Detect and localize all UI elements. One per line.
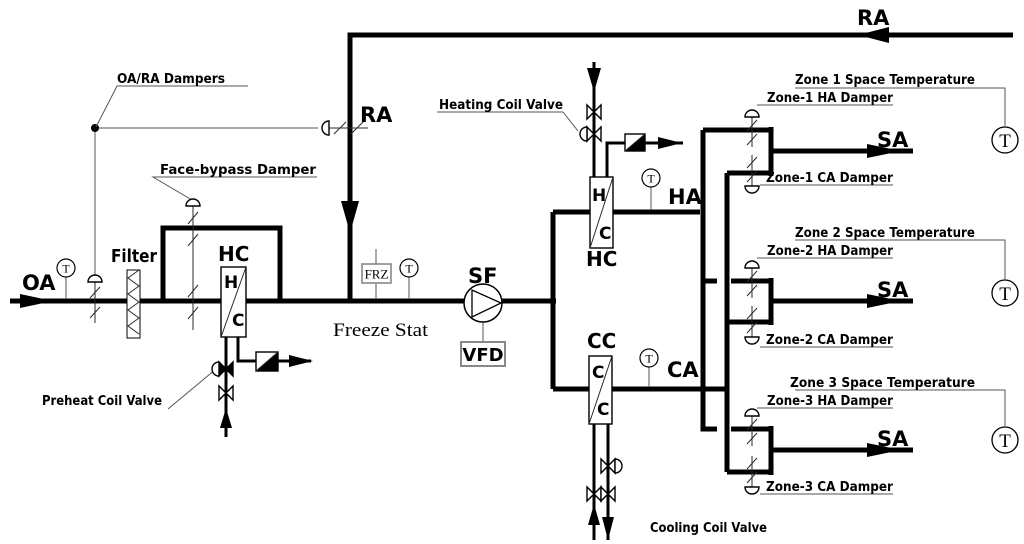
zone1-space-temp-label: Zone 1 Space Temperature: [795, 72, 975, 88]
zone3-ha-damper-label: Zone-3 HA Damper: [767, 393, 893, 409]
frz-label: FRZ: [365, 267, 389, 282]
t-letter: T: [999, 131, 1011, 152]
cooling-coil: C C: [589, 356, 612, 424]
zone2-space-temp-sensor: T: [992, 280, 1018, 306]
ha-label: HA: [668, 185, 703, 209]
heating-coil-piping: [580, 62, 683, 178]
oa-flow-arrow-icon: [20, 294, 53, 308]
zone3-space-temp-sensor: T: [992, 427, 1018, 453]
heating-coil-label: HC: [586, 247, 617, 271]
cooling-valve-label: Cooling Coil Valve: [650, 520, 767, 536]
filter-label: Filter: [111, 246, 157, 267]
cooling-return-arrow-icon: [602, 517, 614, 540]
sf-label: SF: [468, 264, 497, 288]
preheat-coil-c: C: [232, 311, 244, 331]
cooling-valve-actuator: [615, 459, 622, 473]
zone2-ca-damper-label: Zone-2 CA Damper: [766, 332, 893, 348]
heating-valve-actuator: [580, 127, 587, 141]
heating-coil-c: C: [599, 224, 611, 244]
return-air-duct: [341, 27, 1013, 299]
zone-headers: [703, 127, 771, 475]
vfd-label: VFD: [462, 345, 503, 366]
t-letter: T: [999, 284, 1011, 305]
preheat-coil-label: HC: [218, 242, 249, 266]
main-supply-duct: [10, 212, 727, 389]
preheat-valve-leader: [168, 369, 216, 409]
zone2-ha-damper-label: Zone-2 HA Damper: [767, 243, 893, 259]
preheat-return-arrow-icon: [289, 355, 313, 367]
preheat-coil-piping: [212, 335, 313, 437]
preheat-coil-h: H: [224, 273, 238, 293]
ra-vertical-label: RA: [360, 103, 393, 127]
temp-sensor-ca: T: [640, 349, 658, 387]
t-letter: T: [62, 262, 70, 276]
freeze-stat-label: Freeze Stat: [333, 320, 429, 341]
ca-label: CA: [667, 358, 699, 382]
ra-top-label: RA: [857, 6, 890, 30]
zone1-ca-damper-label: Zone-1 CA Damper: [766, 170, 893, 186]
oa-damper-actuator: [88, 275, 102, 282]
freeze-stat-sensor: FRZ: [362, 249, 391, 299]
supply-fan-icon: [464, 284, 502, 342]
cooling-coil-piping: [587, 424, 622, 540]
preheat-valve-actuator: [212, 362, 219, 376]
facebypass-leader: [153, 177, 317, 200]
filter-icon: [127, 270, 140, 338]
t-letter: T: [999, 431, 1011, 452]
heating-supply-arrow-icon: [587, 68, 601, 92]
zone1-ha-damper-label: Zone-1 HA Damper: [767, 90, 893, 106]
face-bypass-label: Face-bypass Damper: [160, 162, 316, 178]
oa-label: OA: [22, 271, 56, 295]
vfd-box: VFD: [461, 342, 505, 366]
zone3-sa-label: SA: [877, 427, 909, 451]
heating-valve-label: Heating Coil Valve: [439, 97, 563, 113]
cooling-coil-c-top: C: [592, 363, 604, 383]
face-bypass-actuator: [186, 199, 200, 206]
hvac-multizone-ahu-diagram: H C H C C C VFD FRZ T T: [0, 0, 1024, 544]
zone2-sa-label: SA: [877, 278, 909, 302]
zone1-space-temp-sensor: T: [992, 127, 1018, 153]
zone3-ca-damper-icon: [745, 456, 759, 494]
zone1-sa-label: SA: [877, 128, 909, 152]
t-letter: T: [647, 172, 655, 186]
cooling-coil-c-bottom: C: [597, 400, 609, 420]
zone3-space-temp-label: Zone 3 Space Temperature: [790, 375, 975, 391]
preheat-valve-label: Preheat Coil Valve: [42, 393, 162, 409]
t-letter: T: [405, 262, 413, 276]
link-junction-dot: [91, 124, 99, 132]
zone2-space-temp-label: Zone 2 Space Temperature: [795, 225, 975, 241]
temp-sensor-discharge: T: [400, 259, 418, 299]
preheat-check-valve-icon: [256, 352, 278, 371]
face-bypass-damper-icon: [186, 199, 200, 330]
preheat-supply-arrow-icon: [220, 408, 232, 428]
preheat-coil: H C: [221, 267, 246, 337]
ra-damper-actuator: [322, 121, 329, 135]
zone3-ca-damper-label: Zone-3 CA Damper: [766, 479, 893, 495]
oara-dampers-label: OA/RA Dampers: [117, 71, 225, 87]
heating-coil-h: H: [592, 186, 606, 206]
oara-leader: [96, 86, 248, 127]
t-letter: T: [645, 352, 653, 366]
cooling-supply-arrow-icon: [588, 504, 600, 525]
cooling-coil-label: CC: [587, 329, 616, 353]
heating-return-arrow-icon: [658, 137, 682, 149]
heating-check-valve-icon: [625, 134, 645, 151]
heating-coil: H C: [590, 177, 613, 248]
heating-valve-leader: [437, 112, 578, 131]
zone2-ca-damper-icon: [745, 306, 759, 344]
diagram-canvas: H C H C C C VFD FRZ T T: [0, 0, 1024, 544]
temp-sensor-ha: T: [642, 169, 660, 210]
ra-down-arrow-icon: [341, 201, 359, 233]
temp-sensor-oa: T: [57, 259, 75, 299]
